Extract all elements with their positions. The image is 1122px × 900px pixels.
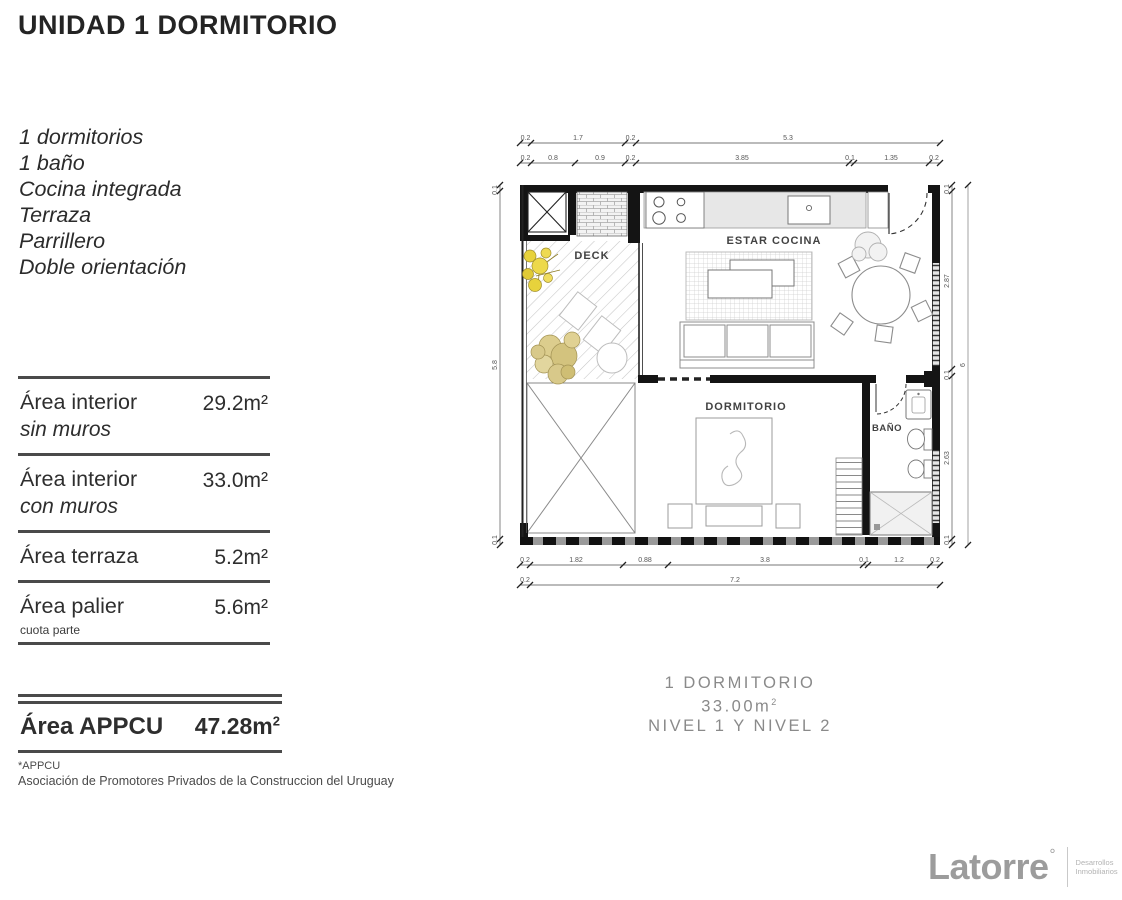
bath-fixtures: [870, 390, 932, 535]
dim-label: 0.1: [944, 184, 951, 194]
room-label-living: ESTAR COCINA: [727, 235, 822, 247]
room-label-bath: BAÑO: [872, 423, 902, 434]
bed-symbol: [668, 418, 800, 528]
dim-label: 0.9: [595, 155, 605, 162]
dim-label: 0.1: [944, 535, 951, 545]
dim-label: 1.35: [884, 155, 898, 162]
feature-item: 1 dormitorios: [19, 124, 186, 150]
dim-label: 0.8: [548, 155, 558, 162]
appcu-label: Área APPCU: [20, 713, 163, 741]
caption-area: 33.00m2: [490, 693, 990, 717]
logo-tagline: Desarrollos Inmobiliarios: [1076, 858, 1118, 876]
feature-item: Cocina integrada: [19, 176, 186, 202]
kitchen-counter: [644, 192, 888, 228]
logo-degree-mark: °: [1050, 846, 1056, 863]
table-row: Área interior 33.0m² con muros: [18, 453, 270, 530]
dim-label: 0.1: [859, 557, 869, 564]
area-label: Área interior: [20, 467, 137, 492]
window-right-lower: [933, 450, 939, 523]
caption-line1: 1 DORMITORIO: [490, 674, 990, 693]
dim-label: 1.82: [569, 557, 583, 564]
double-rule: [18, 694, 282, 704]
plant-symbol: [852, 232, 887, 261]
area-value: 5.6m²: [214, 596, 268, 620]
dim-label: 0.2: [929, 155, 939, 162]
sliding-glass-door: [639, 243, 643, 375]
toilet-icon: [908, 429, 933, 450]
area-sublabel: cuota parte: [20, 623, 80, 637]
dim-label: 1.2: [894, 557, 904, 564]
floor-plan: ESTAR COCINA DECK DORMITORIO BAÑO 0.2 1.…: [478, 128, 978, 628]
table-row: Área interior 29.2m² sin muros: [18, 376, 270, 453]
dim-label: 0.2: [520, 577, 530, 584]
shower-icon: [870, 492, 932, 535]
caption-line3: NIVEL 1 Y NIVEL 2: [490, 717, 990, 736]
dim-label: 0.1: [492, 185, 499, 195]
table-row: Área palier 5.6m² cuota parte: [18, 580, 270, 642]
stairs-symbol: [836, 458, 862, 535]
appcu-total-block: Área APPCU 47.28m2 *APPCU Asociación de …: [18, 694, 282, 788]
area-label: Área palier: [20, 594, 124, 619]
dim-label: 1.7: [573, 135, 583, 142]
area-value: 29.2m²: [203, 392, 268, 416]
dim-label: 0.2: [626, 135, 636, 142]
brand-logo: Latorre ° Desarrollos Inmobiliarios: [928, 846, 1118, 888]
floor-plan-svg: ESTAR COCINA DECK DORMITORIO BAÑO 0.2 1.…: [478, 128, 978, 628]
area-sublabel: con muros: [20, 495, 118, 519]
footnote-text: Asociación de Promotores Privados de la …: [18, 774, 478, 788]
dim-label: 2.87: [944, 274, 951, 288]
kitchen-sink-icon: [788, 196, 830, 224]
dim-label: 0.2: [521, 135, 531, 142]
area-sublabel: sin muros: [20, 418, 111, 442]
appcu-footnote: *APPCU Asociación de Promotores Privados…: [18, 760, 478, 788]
living-rug: [686, 252, 812, 320]
shaft-x-symbol: [528, 192, 566, 232]
table-row: Área terraza 5.2m²: [18, 530, 270, 580]
window-right-upper: [933, 263, 939, 366]
dim-label: 2.63: [944, 451, 951, 465]
feature-item: Terraza: [19, 202, 186, 228]
bath-door-swing: [876, 384, 906, 414]
plan-caption: 1 DORMITORIO 33.00m2 NIVEL 1 Y NIVEL 2: [490, 674, 990, 736]
bottom-wall: [520, 537, 940, 545]
dim-label: 3.85: [735, 155, 749, 162]
area-value: 33.0m²: [203, 469, 268, 493]
dim-label: 6: [960, 363, 967, 367]
page-title: UNIDAD 1 DORMITORIO: [18, 10, 338, 41]
dim-label: 0.1: [845, 155, 855, 162]
bidet-icon: [908, 460, 932, 478]
dim-label: 3.8: [760, 557, 770, 564]
logo-divider: [1067, 847, 1068, 887]
parrillero-symbol: [577, 192, 627, 236]
dim-label: 0.2: [930, 557, 940, 564]
appcu-value: 47.28m2: [195, 713, 280, 740]
feature-item: 1 baño: [19, 150, 186, 176]
area-value: 5.2m²: [214, 546, 268, 570]
dining-table-symbol: [831, 253, 933, 343]
dim-label: 7.2: [730, 577, 740, 584]
logo-name: Latorre: [928, 846, 1049, 888]
feature-item: Parrillero: [19, 228, 186, 254]
feature-list: 1 dormitorios 1 baño Cocina integrada Te…: [19, 124, 186, 280]
void-x-symbol: [527, 383, 635, 533]
areas-table: Área interior 29.2m² sin muros Área inte…: [18, 376, 270, 645]
room-label-deck: DECK: [574, 250, 609, 262]
entry-door-swing: [889, 193, 927, 234]
dim-label: 5.3: [783, 135, 793, 142]
room-label-bedroom: DORMITORIO: [705, 401, 786, 413]
appcu-row: Área APPCU 47.28m2: [18, 704, 282, 753]
dim-label: 0.2: [520, 557, 530, 564]
dim-label: 0.1: [944, 370, 951, 380]
sofa-symbol: [680, 322, 814, 368]
dim-label: 0.2: [626, 155, 636, 162]
area-label: Área interior: [20, 390, 137, 415]
area-label: Área terraza: [20, 544, 138, 569]
fridge-symbol: [868, 192, 888, 228]
dim-label: 0.2: [521, 155, 531, 162]
dim-label: 0.1: [492, 535, 499, 545]
footnote-mark: *APPCU: [18, 760, 478, 772]
feature-item: Doble orientación: [19, 254, 186, 280]
dim-label: 5.8: [492, 360, 499, 370]
dim-label: 0.88: [638, 557, 652, 564]
